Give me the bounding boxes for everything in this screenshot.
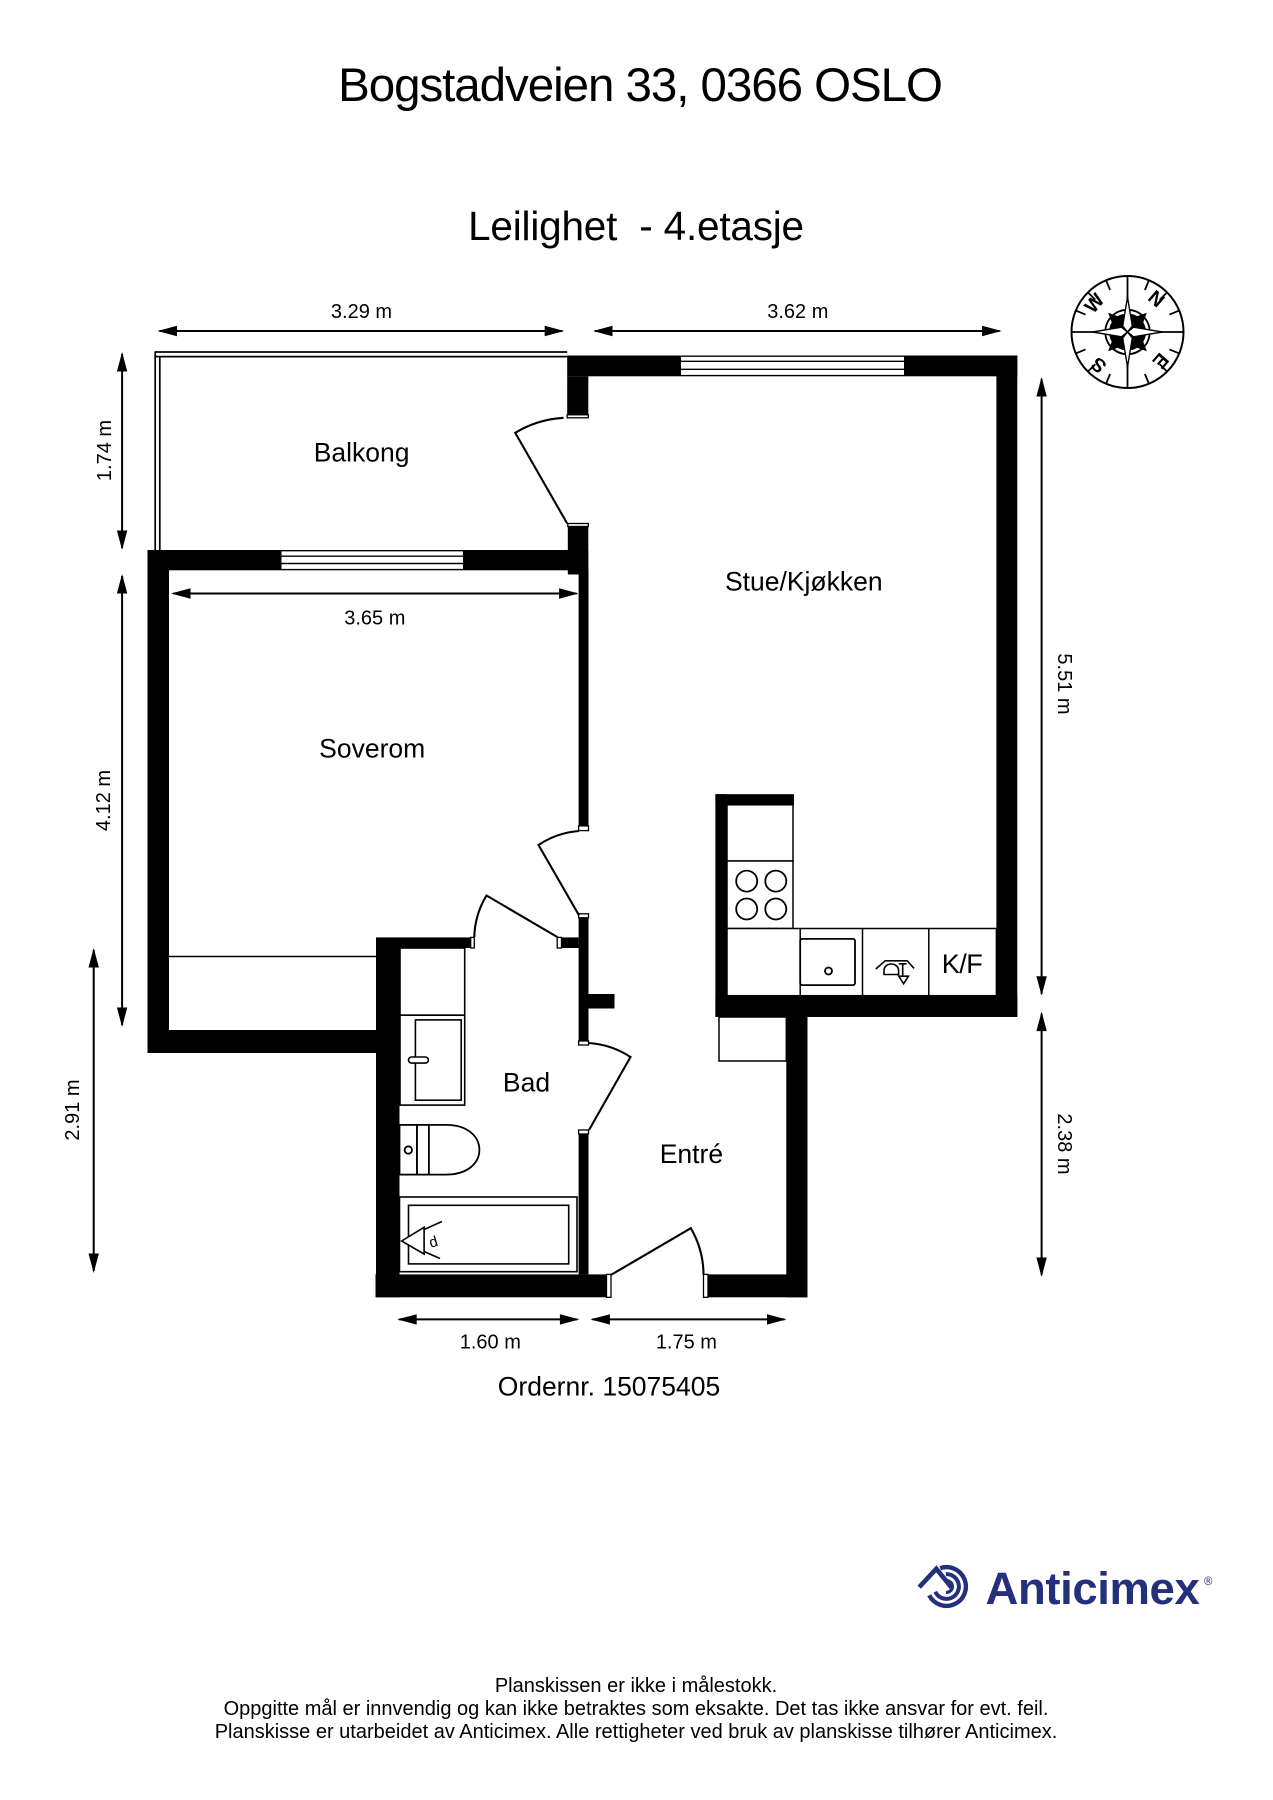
svg-text:Balkong: Balkong: [314, 437, 410, 467]
svg-text:1.75 m: 1.75 m: [656, 1331, 717, 1353]
svg-text:1.74 m: 1.74 m: [94, 420, 116, 481]
svg-text:3.29 m: 3.29 m: [331, 301, 392, 323]
svg-text:Oppgitte mål er innvendig og k: Oppgitte mål er innvendig og kan ikke be…: [224, 1698, 1049, 1720]
svg-text:Bogstadveien 33, 0366 OSLO: Bogstadveien 33, 0366 OSLO: [338, 59, 942, 112]
svg-text:5.51 m: 5.51 m: [1053, 653, 1075, 714]
svg-text:1.60 m: 1.60 m: [460, 1331, 521, 1353]
svg-text:Soverom: Soverom: [319, 733, 425, 763]
svg-text:K/F: K/F: [942, 949, 983, 979]
svg-text:2.91 m: 2.91 m: [62, 1079, 84, 1140]
svg-text:2.38 m: 2.38 m: [1053, 1113, 1075, 1174]
svg-text:Ordernr. 15075405: Ordernr. 15075405: [498, 1371, 720, 1401]
svg-text:Leilighet - 4.etasje: Leilighet - 4.etasje: [468, 203, 804, 249]
svg-text:Bad: Bad: [503, 1068, 550, 1098]
svg-text:Stue/Kjøkken: Stue/Kjøkken: [725, 567, 883, 597]
svg-text:Planskisse er utarbeidet av An: Planskisse er utarbeidet av Anticimex. A…: [215, 1721, 1058, 1743]
svg-text:Entré: Entré: [660, 1139, 723, 1169]
svg-text:4.12 m: 4.12 m: [93, 770, 115, 831]
svg-text:3.65 m: 3.65 m: [344, 608, 405, 630]
svg-text:Planskissen er ikke i målestok: Planskissen er ikke i målestokk.: [495, 1675, 777, 1697]
svg-text:3.62 m: 3.62 m: [767, 301, 828, 323]
svg-text:®: ®: [1204, 1576, 1213, 1588]
svg-text:Anticimex: Anticimex: [986, 1563, 1200, 1614]
